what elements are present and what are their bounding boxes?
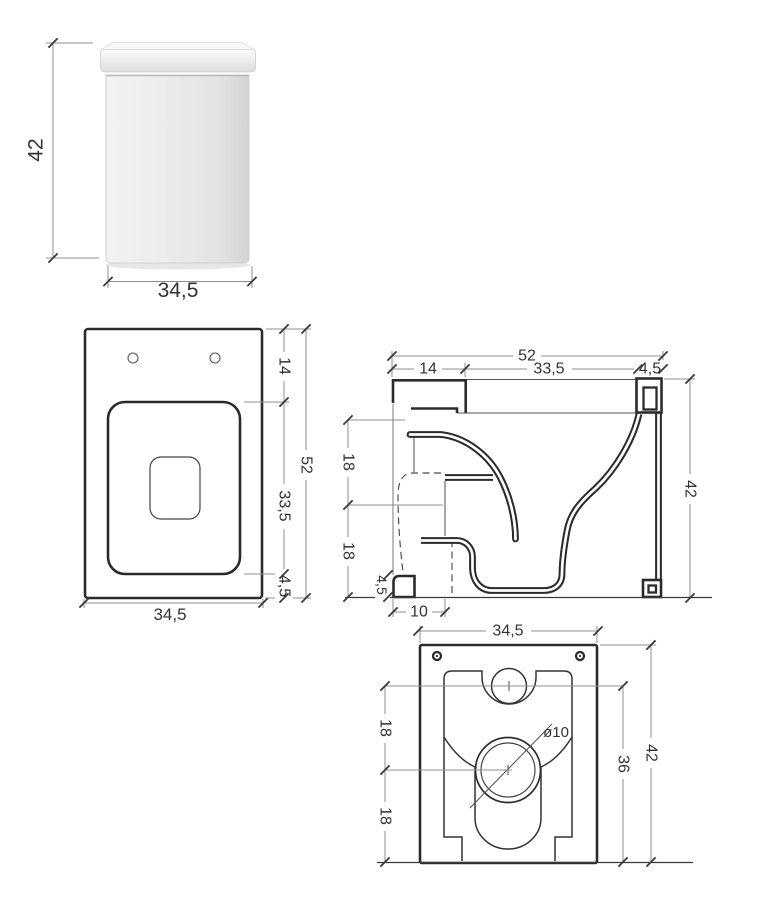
rear-upper-spacing-label: 18 (377, 719, 394, 737)
box-lid-top (101, 43, 254, 50)
section-foot-depth-label: 10 (410, 604, 428, 621)
side-section-view: 52 14 33,5 4,5 42 18 18 4,5 10 (339, 347, 712, 621)
fixing-block (637, 379, 662, 413)
hidden-inlet-pipe (398, 473, 441, 572)
hinge-hole-right (210, 353, 220, 363)
technical-drawing-sheet: 42 34,5 (0, 0, 761, 911)
front-render-view: 42 34,5 (25, 38, 257, 302)
rear-view: ø10 34,5 18 (376, 622, 693, 867)
rear-width-label: 34,5 (492, 623, 523, 640)
box-lid-front (101, 49, 256, 73)
rear-height-label: 42 (643, 744, 660, 762)
section-height-label: 42 (682, 480, 699, 498)
floor-bracket (394, 576, 415, 597)
wall-foot (643, 580, 661, 597)
render-height-label: 42 (25, 138, 48, 161)
section-back-channel-label: 14 (419, 361, 437, 378)
section-opening-depth-label: 33,5 (533, 361, 564, 378)
seat-opening-outline (108, 402, 240, 574)
rear-lower-spacing-label: 18 (377, 807, 394, 825)
bowl-opening-outline (150, 457, 200, 519)
top-view: 14 52 33,5 4,5 34,5 (79, 324, 315, 624)
plan-depth-label: 52 (298, 456, 315, 474)
hinge-hole-left (128, 353, 138, 363)
box-body (106, 75, 249, 263)
rear-inlet-height-label: 36 (615, 755, 632, 773)
rear-outer-outline (420, 645, 597, 863)
section-upper-spacing-label: 18 (340, 453, 357, 471)
drawing-canvas: 42 34,5 (0, 0, 761, 911)
plan-width-label: 34,5 (153, 605, 186, 624)
soil-pipe-housing (444, 737, 572, 849)
plan-outer-outline (85, 329, 262, 598)
flush-rim-curve (410, 435, 516, 540)
section-lower-spacing-label: 18 (340, 542, 357, 560)
render-width-label: 34,5 (158, 279, 199, 302)
plan-back-offset-label: 14 (276, 357, 293, 375)
section-back-wall-label: 4,5 (639, 361, 661, 378)
outlet-diameter-label: ø10 (543, 724, 569, 741)
plan-dimensions: 14 52 33,5 4,5 34,5 (79, 324, 315, 624)
section-foot-height-label: 4,5 (374, 575, 390, 595)
plan-front-edge-label: 4,5 (276, 575, 293, 597)
plan-opening-depth-label: 33,5 (276, 490, 293, 521)
